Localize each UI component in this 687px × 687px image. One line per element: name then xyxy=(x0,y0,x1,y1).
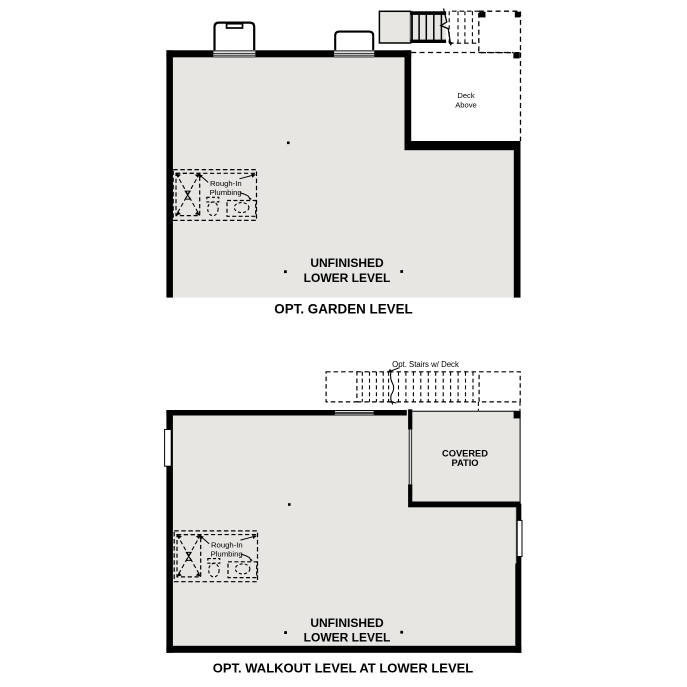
svg-text:OPT. GARDEN LEVEL: OPT. GARDEN LEVEL xyxy=(274,302,412,317)
svg-text:Opt. Stairs w/ Deck: Opt. Stairs w/ Deck xyxy=(392,360,459,369)
svg-text:LOWER LEVEL: LOWER LEVEL xyxy=(304,271,391,285)
svg-text:PATIO: PATIO xyxy=(451,458,478,468)
svg-text:OPT. WALKOUT LEVEL AT LOWER LE: OPT. WALKOUT LEVEL AT LOWER LEVEL xyxy=(213,660,474,675)
svg-text:Above: Above xyxy=(455,101,477,110)
svg-text:UNFINISHED: UNFINISHED xyxy=(310,616,384,630)
svg-text:Deck: Deck xyxy=(457,91,475,100)
svg-text:LOWER LEVEL: LOWER LEVEL xyxy=(304,630,391,644)
svg-text:COVERED: COVERED xyxy=(442,448,488,458)
svg-text:UNFINISHED: UNFINISHED xyxy=(310,256,384,270)
